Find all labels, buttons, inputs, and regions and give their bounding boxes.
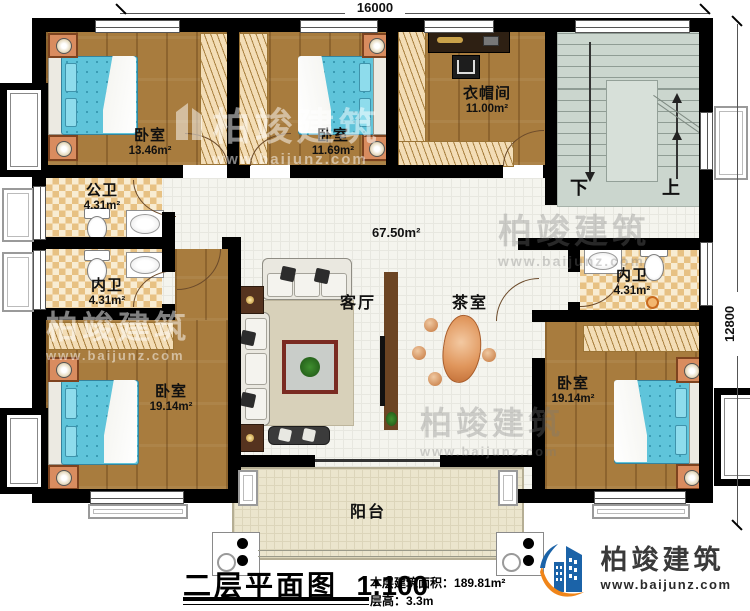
wall-bedroom-divider-1 <box>227 18 239 178</box>
dimension-top-value: 16000 <box>345 0 405 15</box>
sink-public-bath <box>126 210 164 238</box>
plant-icon <box>300 357 320 377</box>
tv-wall-plant-icon <box>386 412 397 426</box>
wall-bath-right-b <box>162 304 175 320</box>
room-name: 卧室 <box>288 128 378 145</box>
room-label-bedroom-bottom-right: 卧室 19.14m² <box>528 376 618 406</box>
room-area: 13.46m² <box>95 145 205 158</box>
wall-bath-mid-stub <box>222 237 241 249</box>
stair-treads-left <box>557 89 607 171</box>
bed-pillow <box>359 98 371 127</box>
tv-wall <box>384 272 398 430</box>
floor-area-value: 189.81m² <box>454 576 505 590</box>
cloakroom-closet-bottom <box>398 141 514 167</box>
dressing-table <box>428 31 510 53</box>
room-name: 内卫 <box>62 278 152 295</box>
balcony-column-right <box>496 532 544 576</box>
nightstand <box>48 357 79 382</box>
balcony-pilaster-left <box>238 470 258 506</box>
bed-pillow <box>675 388 687 418</box>
window-top-2 <box>300 20 378 33</box>
nightstand <box>48 33 78 58</box>
floor-height-row: 层高：3.3m <box>370 592 433 609</box>
wall-bath-bottom <box>32 308 175 320</box>
brand-name: 柏竣建筑 <box>600 538 731 577</box>
wall-balcony-front-right <box>440 455 532 467</box>
bench-seat <box>268 426 330 445</box>
dressing-stool <box>452 55 480 79</box>
bed-sheet <box>103 56 136 133</box>
floor-plan-canvas: 下 上 <box>0 0 750 611</box>
floor-height-label: 层高： <box>370 594 406 608</box>
bed-top-left <box>48 56 136 133</box>
room-area: 4.31m² <box>62 295 152 308</box>
window-sill-left <box>88 504 188 519</box>
window-sill-right <box>592 504 690 519</box>
room-name: 卧室 <box>126 384 216 401</box>
room-label-inner-bath-left: 内卫 4.31m² <box>62 278 152 308</box>
stair-up-arrowhead2-icon <box>672 130 682 140</box>
tv-screen <box>380 336 385 406</box>
tea-stool <box>424 318 438 332</box>
brand-website: www.baijunz.com <box>600 577 731 592</box>
floor-area-label: 本层建筑面积： <box>370 576 454 590</box>
coffee-table <box>282 340 338 394</box>
wall-cloak-stairs-divider <box>545 18 557 205</box>
brand-logo: 柏竣建筑 www.baijunz.com <box>538 538 748 608</box>
sofa-pillow <box>280 266 297 283</box>
sofa-pillow <box>314 268 331 285</box>
room-area: 19.14m² <box>528 393 618 406</box>
bed-sheet <box>298 56 331 133</box>
room-label-inner-bath-right: 内卫 4.31m² <box>587 268 677 298</box>
stair-up-arrowhead-icon <box>672 93 682 103</box>
bay-frame-left-1 <box>2 188 34 242</box>
room-label-balcony: 阳台 <box>350 498 386 522</box>
bay-window-right-bottom <box>714 388 750 486</box>
dimension-line-right <box>737 24 738 526</box>
window-bottom-2 <box>594 491 686 504</box>
sofa-pillow <box>240 330 257 347</box>
floor-area-row: 本层建筑面积：189.81m² <box>370 574 505 591</box>
window-right-stairs <box>700 112 713 170</box>
stair-landing <box>606 80 658 182</box>
wall-corridor-a <box>32 165 183 178</box>
window-right-bath <box>700 242 713 306</box>
bed-bottom-left <box>48 380 137 463</box>
window-left-bath2 <box>33 250 46 310</box>
stair-down-arrow-line <box>589 42 591 176</box>
window-bottom-1 <box>90 491 184 504</box>
lamp-icon <box>369 38 385 54</box>
tea-stool <box>428 372 442 386</box>
balcony-railing <box>258 550 496 557</box>
bed-pillow <box>65 388 77 419</box>
brand-logo-icon <box>538 538 592 607</box>
bed-pillow <box>65 63 77 92</box>
bed-pillow <box>65 98 77 127</box>
title-underline-thick <box>183 597 369 601</box>
hall-area-label: 67.50m² <box>372 225 420 240</box>
sofa-cushion <box>245 353 267 385</box>
wall-bath-right-a <box>162 212 175 272</box>
floor-height-value: 3.3m <box>406 594 433 608</box>
window-top-4 <box>575 20 690 33</box>
room-label-tea: 茶室 <box>452 289 488 313</box>
lamp-icon <box>684 363 700 379</box>
room-area: 11.69m² <box>288 145 378 158</box>
column-dot <box>523 538 534 549</box>
stair-down-label: 下 <box>570 174 588 200</box>
wall-bath-mid <box>32 237 175 249</box>
toilet-public-bath <box>84 208 108 240</box>
dimension-line-top <box>120 13 710 14</box>
floor-drain-icon <box>646 296 659 309</box>
lamp-icon <box>56 470 72 486</box>
bench-pillow <box>278 428 292 442</box>
tea-stool <box>482 348 496 362</box>
balcony-sliding-door <box>315 459 440 462</box>
room-label-cloakroom: 衣帽间 11.00m² <box>432 86 542 116</box>
window-top-1 <box>95 20 180 33</box>
lamp-icon <box>684 470 700 486</box>
lamp-icon <box>56 141 72 157</box>
bed-bottom-right <box>614 380 702 462</box>
lamp-icon <box>56 362 72 378</box>
bay-frame-left-2 <box>2 252 34 312</box>
wall-bath-r-bottom <box>532 310 713 322</box>
bed-pillow <box>675 425 687 455</box>
room-area: 4.31m² <box>57 200 147 213</box>
room-name: 公卫 <box>57 183 147 200</box>
wall-bath-r-left-a <box>568 238 580 272</box>
wall-balcony-front-left <box>235 455 315 467</box>
bay-window-left-top <box>0 83 48 177</box>
room-label-living: 客厅 <box>340 289 376 313</box>
cloakroom-closet-left <box>398 31 426 143</box>
dimension-right-value: 12800 <box>722 292 738 356</box>
bedroom-bottom-right-closet <box>583 325 702 352</box>
room-area: 4.31m² <box>587 285 677 298</box>
column-dot <box>237 538 248 549</box>
stair-up-label: 上 <box>662 174 680 200</box>
bed-pillow <box>359 63 371 92</box>
bench-pillow <box>302 428 316 442</box>
bay-window-left-bottom <box>0 408 48 494</box>
column-dot <box>523 555 534 566</box>
sofa-top <box>262 258 352 300</box>
room-name: 卧室 <box>528 376 618 393</box>
window-top-3 <box>424 20 494 33</box>
bay-frame-right <box>714 106 748 180</box>
nightstand <box>48 135 78 161</box>
room-label-public-bath: 公卫 4.31m² <box>57 183 147 213</box>
nightstand <box>48 465 79 490</box>
room-area: 11.00m² <box>432 103 542 116</box>
lamp-icon <box>56 38 72 54</box>
room-name: 内卫 <box>587 268 677 285</box>
bed-sheet <box>614 380 647 462</box>
room-name: 卧室 <box>95 128 205 145</box>
column-circle <box>502 553 521 572</box>
wall-bedroom-divider-2 <box>386 18 398 178</box>
room-label-bedroom-top-left: 卧室 13.46m² <box>95 128 205 158</box>
room-label-bedroom-top-mid: 卧室 11.69m² <box>288 128 378 158</box>
tea-stool <box>412 346 426 360</box>
bed-pillow <box>65 426 77 457</box>
window-left-bath1 <box>33 186 46 240</box>
title-underline-thin <box>183 604 369 605</box>
sofa-pillow <box>240 392 257 409</box>
bedroom-bottom-left-closet <box>48 322 174 350</box>
bed-top-mid <box>298 56 386 133</box>
room-area: 19.14m² <box>126 401 216 414</box>
balcony-pilaster-right <box>498 470 518 506</box>
room-label-bedroom-bottom-left: 卧室 19.14m² <box>126 384 216 414</box>
room-name: 衣帽间 <box>432 86 542 103</box>
wall-bath-r-top <box>518 238 713 250</box>
